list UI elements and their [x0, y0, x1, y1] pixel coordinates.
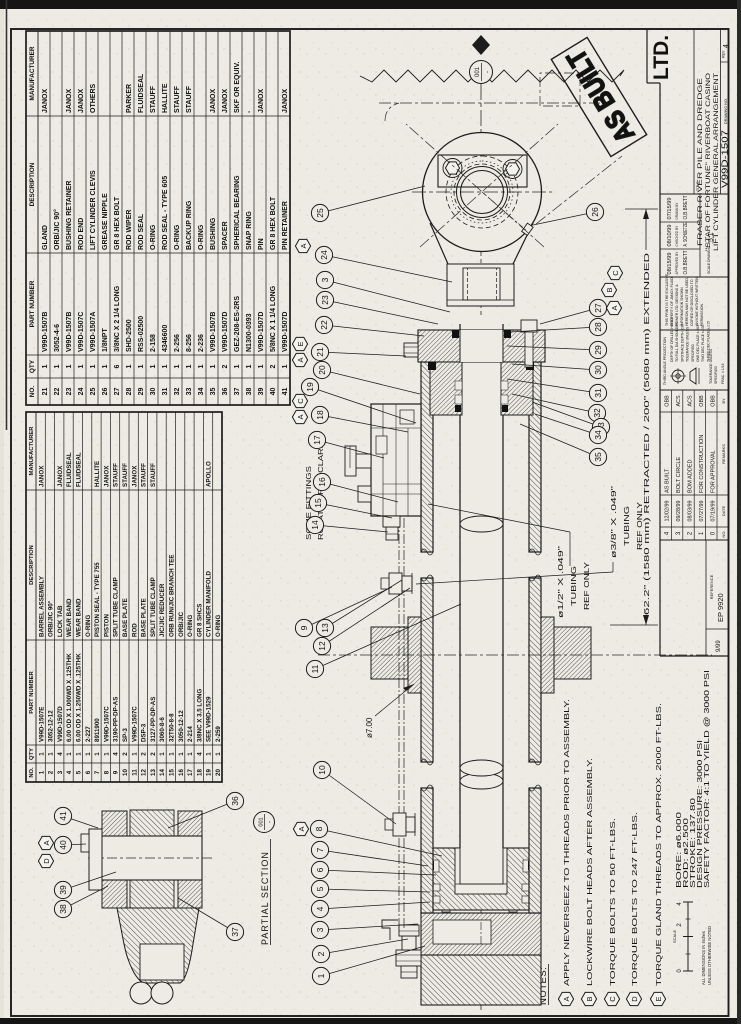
svg-text:3: 3: [320, 277, 330, 282]
svg-text:4: 4: [677, 902, 683, 906]
svg-text:4: 4: [66, 770, 73, 774]
svg-text:22: 22: [54, 388, 61, 396]
svg-text:1: 1: [234, 364, 241, 368]
svg-text:11: 11: [310, 664, 320, 673]
svg-text:CYLINDER MANIFOLD: CYLINDER MANIFOLD: [206, 570, 213, 637]
svg-text:2-214: 2-214: [187, 726, 194, 742]
svg-text:19: 19: [206, 769, 213, 776]
svg-text:SPHERICAL BEARING: SPHERICAL BEARING: [234, 175, 241, 250]
svg-text:ROD WIPER: ROD WIPER: [126, 210, 133, 250]
svg-text:10: 10: [122, 769, 129, 776]
svg-text:08/15/99: 08/15/99: [667, 252, 673, 274]
svg-text:38: 38: [246, 388, 253, 396]
svg-text:19: 19: [305, 382, 315, 392]
svg-text:1: 1: [38, 770, 45, 774]
svg-text:O.B.BRETT: O.B.BRETT: [683, 196, 689, 220]
svg-text:OTHERS: OTHERS: [90, 84, 97, 114]
svg-text:MANUFACTURER: MANUFACTURER: [29, 46, 36, 100]
svg-text:DSP-3: DSP-3: [141, 723, 148, 742]
svg-text:17: 17: [187, 769, 194, 776]
svg-text:JIC/JIC REDUCER: JIC/JIC REDUCER: [159, 583, 166, 637]
svg-text:TO FULL DIA SHOULDER: TO FULL DIA SHOULDER: [675, 322, 679, 362]
svg-text:3190-PP-DP-AS: 3190-PP-DP-AS: [113, 697, 120, 742]
svg-text:BY: BY: [721, 398, 726, 404]
svg-text:LIFT CYLINDER GENERAL ARRANGEM: LIFT CYLINDER GENERAL ARRANGEMENT: [713, 73, 720, 251]
svg-text:5: 5: [75, 770, 82, 774]
svg-text:07/19/99: 07/19/99: [710, 501, 716, 522]
svg-text:2: 2: [316, 951, 326, 956]
svg-text:1: 1: [206, 752, 213, 756]
svg-text:FOR APPROVAL: FOR APPROVAL: [710, 450, 716, 493]
svg-text:6: 6: [114, 364, 121, 368]
svg-text:BASE PLATE: BASE PLATE: [141, 598, 148, 637]
svg-text:1: 1: [85, 752, 92, 756]
svg-text:D: D: [630, 996, 639, 1002]
svg-text:1: 1: [168, 752, 175, 756]
svg-text:3052-4-6: 3052-4-6: [54, 324, 61, 352]
svg-text:B: B: [605, 287, 614, 292]
svg-text:FOR CONSTRUCTION: FOR CONSTRUCTION: [699, 435, 705, 493]
svg-text:"STAR OF FORTUNE" RIVERBOAT CA: "STAR OF FORTUNE" RIVERBOAT CASINO: [705, 73, 712, 251]
svg-text:SPECIFIED: SPECIFIED: [714, 366, 718, 384]
svg-text:O-RING: O-RING: [174, 224, 181, 250]
svg-text:E: E: [296, 341, 305, 346]
svg-text:TUBING: TUBING: [622, 505, 631, 546]
svg-text:ø3/8" X .049": ø3/8" X .049": [609, 485, 618, 558]
svg-text:16: 16: [178, 769, 185, 776]
svg-text:27: 27: [593, 303, 603, 313]
svg-text:1: 1: [258, 364, 265, 368]
svg-text:1: 1: [131, 752, 138, 756]
svg-text:6: 6: [315, 867, 325, 872]
svg-text:4: 4: [57, 752, 64, 756]
svg-text:1: 1: [103, 752, 110, 756]
svg-text:15: 15: [313, 498, 323, 508]
svg-text:GLAND: GLAND: [42, 225, 49, 250]
svg-text:GEZ-208-ES-2RS: GEZ-208-ES-2RS: [234, 296, 241, 352]
svg-text:ORB/JIC: ORB/JIC: [178, 611, 185, 637]
svg-text:37: 37: [234, 388, 241, 396]
svg-text:A: A: [297, 826, 306, 831]
svg-text:6.00 OD X 1.000WD X .125THK: 6.00 OD X 1.000WD X .125THK: [66, 653, 73, 742]
svg-text:2: 2: [222, 364, 229, 368]
svg-text:B: B: [585, 996, 594, 1001]
svg-text:3: 3: [57, 770, 64, 774]
svg-text:1: 1: [150, 364, 157, 368]
svg-text:13: 13: [150, 769, 157, 776]
svg-text:12: 12: [141, 769, 148, 776]
svg-text:STAUFF: STAUFF: [150, 463, 157, 487]
svg-text:8: 8: [103, 770, 110, 774]
svg-text:MANUFACTURER: MANUFACTURER: [29, 426, 35, 476]
svg-text:STAUFF: STAUFF: [113, 463, 120, 487]
svg-text:11: 11: [131, 769, 138, 776]
svg-text:18: 18: [196, 769, 203, 776]
svg-text:23: 23: [320, 295, 330, 305]
svg-text:1: 1: [78, 364, 85, 368]
svg-text:O-RING: O-RING: [85, 614, 92, 637]
svg-text:SEE V99D-1529: SEE V99D-1529: [206, 696, 213, 742]
svg-text:09/28/99: 09/28/99: [676, 501, 682, 522]
svg-text:REFERENCE: REFERENCE: [709, 574, 714, 599]
svg-text:41: 41: [282, 388, 289, 396]
svg-text:2-236: 2-236: [198, 334, 205, 352]
svg-text:V99D-1507E: V99D-1507E: [38, 707, 45, 742]
svg-text:HALLITE: HALLITE: [162, 83, 169, 113]
svg-text:THIS PRINT IS THE EXCLUSIVE: THIS PRINT IS THE EXCLUSIVE: [665, 273, 669, 326]
svg-text:APOLLO: APOLLO: [206, 461, 213, 487]
svg-text:STAUFF: STAUFF: [150, 85, 157, 113]
svg-text:38: 38: [58, 904, 68, 914]
svg-text:15: 15: [168, 769, 175, 776]
svg-text:LOCK TAB: LOCK TAB: [57, 605, 64, 637]
svg-text:1: 1: [699, 531, 705, 535]
svg-text:V99D-1507: V99D-1507: [721, 129, 730, 188]
svg-text:UNLESS OTHERWISE NOTED: UNLESS OTHERWISE NOTED: [707, 926, 712, 985]
svg-text:OBB: OBB: [699, 395, 705, 407]
svg-text:BOLT CIRCLE: BOLT CIRCLE: [676, 457, 682, 493]
svg-text:3050-12-12: 3050-12-12: [178, 710, 185, 742]
svg-text:V99D-1507B: V99D-1507B: [210, 312, 217, 352]
svg-text:JANOX: JANOX: [42, 89, 49, 113]
svg-text:FLUIDSEAL: FLUIDSEAL: [138, 73, 145, 113]
svg-text:ø1/2" X .049": ø1/2" X .049": [556, 545, 565, 618]
svg-text:1: 1: [94, 752, 101, 756]
svg-text:V99D-1507D: V99D-1507D: [57, 706, 64, 742]
svg-text:62.2" (1580 mm) RETRACTED / 20: 62.2" (1580 mm) RETRACTED / 200" (5080 m…: [642, 252, 651, 615]
svg-text:FRAC. ± 1/16: FRAC. ± 1/16: [721, 363, 725, 384]
svg-text:22: 22: [319, 320, 329, 330]
svg-text:TORQUE GLAND THREADS TO APPROX: TORQUE GLAND THREADS TO APPROX. 2000 FT-…: [654, 703, 663, 986]
svg-text:30: 30: [593, 365, 603, 375]
svg-text:3/8NC X 2 1/4 LONG: 3/8NC X 2 1/4 LONG: [114, 285, 121, 352]
svg-text:PERMISSION.: PERMISSION.: [700, 303, 704, 326]
svg-text:4: 4: [315, 906, 325, 911]
svg-text:D: D: [42, 858, 51, 864]
svg-text:JANOX: JANOX: [66, 89, 73, 113]
svg-text:FLUIDSEAL: FLUIDSEAL: [66, 452, 73, 487]
svg-text:WEAR BAND: WEAR BAND: [75, 598, 82, 637]
svg-text:V99D-1507C: V99D-1507C: [103, 706, 110, 742]
svg-text:8-256: 8-256: [186, 334, 193, 352]
svg-text:1: 1: [54, 364, 61, 368]
svg-text:C: C: [296, 398, 305, 404]
svg-text:TWO DEC PLACE ±.030: TWO DEC PLACE ±.030: [701, 324, 705, 362]
svg-text:A: A: [610, 305, 619, 310]
svg-text:REV: REV: [722, 50, 726, 58]
svg-text:ø7.00: ø7.00: [365, 717, 374, 738]
svg-text:DRAWN BY: DRAWN BY: [675, 202, 679, 220]
svg-text:3/8NC X 3.5 LONG: 3/8NC X 3.5 LONG: [196, 689, 203, 742]
svg-text:REF ONLY: REF ONLY: [582, 562, 591, 610]
svg-text:STAUFF: STAUFF: [186, 85, 193, 113]
svg-text:3: 3: [676, 531, 682, 535]
svg-text:ACS: ACS: [676, 395, 682, 406]
svg-text:16: 16: [317, 477, 327, 487]
svg-text:25: 25: [315, 208, 325, 218]
svg-text:-: -: [246, 110, 253, 113]
svg-text:PARTIAL SECTION: PARTIAL SECTION: [260, 851, 270, 945]
svg-text:RSS-02500: RSS-02500: [138, 316, 145, 352]
svg-text:28: 28: [126, 388, 133, 396]
svg-text:SHD-2500: SHD-2500: [126, 319, 133, 352]
svg-text:29: 29: [138, 388, 145, 396]
svg-text:32T50-8-8: 32T50-8-8: [168, 713, 175, 742]
svg-text:31: 31: [593, 388, 603, 398]
svg-text:5/8NC X 1 1/4 LONG: 5/8NC X 1 1/4 LONG: [270, 285, 277, 352]
svg-text:18: 18: [315, 410, 325, 420]
svg-text:14: 14: [310, 520, 320, 530]
svg-text:4346600: 4346600: [162, 325, 169, 352]
svg-text:10: 10: [317, 765, 327, 775]
svg-text:TUBING: TUBING: [569, 565, 578, 606]
svg-text:JANOX: JANOX: [78, 89, 85, 113]
svg-text:HALLITE: HALLITE: [94, 461, 101, 487]
svg-text:21: 21: [42, 388, 49, 396]
svg-text:LIFT CYLINDER CLEVIS: LIFT CYLINDER CLEVIS: [90, 170, 97, 250]
svg-text:ORB/JIC 90°: ORB/JIC 90°: [53, 209, 61, 250]
svg-text:SPACER: SPACER: [222, 221, 229, 250]
svg-text:39: 39: [58, 885, 68, 895]
svg-text:V99D-1507B: V99D-1507B: [42, 312, 49, 352]
svg-text:35: 35: [210, 388, 217, 396]
svg-text:13: 13: [320, 623, 330, 633]
svg-text:V99D-1507A: V99D-1507A: [90, 312, 97, 352]
svg-text:HEREON MAY NOT BE USED,: HEREON MAY NOT BE USED,: [685, 277, 689, 326]
svg-text:A: A: [42, 840, 51, 845]
svg-text:2: 2: [122, 752, 129, 756]
svg-text:1/8NPT: 1/8NPT: [102, 328, 109, 352]
svg-text:O-RING: O-RING: [150, 224, 157, 250]
svg-text:STAUFF: STAUFF: [122, 463, 129, 487]
svg-text:07/15/99: 07/15/99: [667, 197, 673, 219]
svg-text:4: 4: [723, 44, 730, 48]
svg-text:PIN RETAINER: PIN RETAINER: [282, 201, 289, 250]
svg-text:NO.: NO.: [721, 530, 726, 537]
svg-text:0: 0: [710, 531, 716, 535]
svg-text:36: 36: [222, 388, 229, 396]
svg-text:24: 24: [319, 250, 329, 260]
svg-text:6: 6: [85, 770, 92, 774]
svg-text:1: 1: [66, 752, 73, 756]
svg-text:A: A: [299, 243, 308, 248]
svg-text:1: 1: [90, 364, 97, 368]
svg-text:1: 1: [38, 752, 45, 756]
svg-text:9: 9: [113, 770, 120, 774]
svg-text:V99D-1507C: V99D-1507C: [78, 312, 85, 352]
svg-text:1: 1: [187, 752, 194, 756]
svg-text:0: 0: [677, 969, 683, 973]
svg-text:ROD SEAL - TYPE 605: ROD SEAL - TYPE 605: [162, 176, 169, 250]
svg-text:2-256: 2-256: [174, 334, 181, 352]
svg-text:SP-3: SP-3: [122, 728, 129, 742]
svg-text:ROD SEAL: ROD SEAL: [138, 213, 145, 250]
svg-text:PART NUMBER: PART NUMBER: [29, 280, 36, 327]
svg-text:JANOX: JANOX: [222, 89, 229, 113]
svg-text:ROD: ROD: [131, 623, 138, 637]
svg-text:O-RING: O-RING: [198, 224, 205, 250]
svg-text:2-158: 2-158: [150, 334, 157, 352]
svg-text:20: 20: [215, 769, 222, 776]
svg-text:1: 1: [102, 364, 109, 368]
svg-text:JANOX: JANOX: [57, 465, 64, 487]
svg-text:THIRD ANGLE PROJECTION: THIRD ANGLE PROJECTION: [663, 337, 667, 386]
svg-text:ALL DIMENSIONS IN Inches: ALL DIMENSIONS IN Inches: [701, 931, 706, 985]
svg-text:29: 29: [593, 345, 603, 355]
svg-text:ROD END: ROD END: [78, 218, 85, 250]
svg-text:1: 1: [126, 364, 133, 368]
svg-text:8911900: 8911900: [94, 718, 101, 742]
svg-text:1: 1: [159, 752, 166, 756]
svg-text:BOM ADDED: BOM ADDED: [688, 459, 694, 493]
svg-text:1: 1: [42, 364, 49, 368]
svg-text:2: 2: [150, 752, 157, 756]
svg-text:DRAWING NO.: DRAWING NO.: [724, 98, 728, 124]
svg-text:V99D-1507C: V99D-1507C: [131, 706, 138, 742]
svg-text:7: 7: [315, 847, 325, 852]
svg-text:V99D-1507D: V99D-1507D: [222, 312, 229, 352]
svg-text:4: 4: [113, 752, 120, 756]
svg-text:28: 28: [593, 322, 603, 332]
svg-text:001: 001: [475, 66, 481, 77]
svg-text:20: 20: [317, 365, 327, 375]
svg-text:POWER LTD. DESIGNS &: POWER LTD. DESIGNS &: [675, 284, 679, 326]
svg-text:PISTON: PISTON: [103, 614, 110, 637]
svg-text:SPOTFACE DEPTH .030: SPOTFACE DEPTH .030: [680, 324, 684, 362]
svg-text:APPROVED BY: APPROVED BY: [675, 251, 679, 275]
svg-text:12/02/99: 12/02/99: [665, 501, 671, 522]
svg-text:12: 12: [317, 641, 327, 651]
svg-text:SCALE: SCALE: [672, 930, 677, 943]
svg-text:GR 8 SHCS: GR 8 SHCS: [196, 604, 203, 637]
svg-text:2-259: 2-259: [215, 726, 222, 742]
svg-text:07/27/99: 07/27/99: [699, 501, 705, 522]
svg-text:41: 41: [58, 811, 68, 821]
svg-text:34: 34: [198, 388, 205, 396]
svg-text:37: 37: [230, 927, 240, 937]
svg-text:JANOX: JANOX: [258, 89, 265, 113]
svg-text:SPLIT TUBE CLAMP: SPLIT TUBE CLAMP: [150, 577, 157, 637]
svg-text:21: 21: [315, 347, 325, 357]
svg-text:ANYONE WITHOUT WRITTEN: ANYONE WITHOUT WRITTEN: [695, 277, 699, 326]
svg-text:A: A: [296, 414, 305, 419]
svg-text:1: 1: [198, 364, 205, 368]
svg-text:GR 8 HEX BOLT: GR 8 HEX BOLT: [270, 196, 277, 250]
svg-text:3127-PP-DP-AS: 3127-PP-DP-AS: [150, 697, 157, 742]
svg-text:6.00 OD X 1.250WD X .125THK: 6.00 OD X 1.250WD X .125THK: [75, 653, 82, 742]
svg-text:-: -: [267, 821, 273, 823]
svg-text:COPIED OR DISCLOSED TO: COPIED OR DISCLOSED TO: [690, 279, 694, 326]
svg-text:JANOX: JANOX: [38, 465, 45, 487]
svg-text:O-RING: O-RING: [187, 614, 194, 637]
svg-text:BARREL ASSEMBLY: BARREL ASSEMBLY: [38, 575, 45, 637]
svg-text:1: 1: [186, 364, 193, 368]
svg-text:PROPERTY OF JANOX FLUID: PROPERTY OF JANOX FLUID: [670, 277, 674, 326]
svg-text:REMARKS: REMARKS: [721, 444, 726, 464]
svg-text:3052-12-12: 3052-12-12: [48, 710, 55, 742]
svg-text:C: C: [608, 996, 617, 1002]
svg-text:2: 2: [48, 770, 55, 774]
svg-text:4: 4: [196, 752, 203, 756]
svg-text:SNAP RING: SNAP RING: [246, 211, 253, 250]
svg-text:40: 40: [58, 840, 68, 850]
svg-text:CHECKED BY: CHECKED BY: [675, 225, 679, 247]
svg-text:QTY: QTY: [29, 748, 35, 760]
svg-text:32: 32: [592, 408, 602, 418]
svg-text:1: 1: [75, 752, 82, 756]
svg-text:BACKUP RING: BACKUP RING: [186, 200, 193, 250]
svg-text:1: 1: [215, 752, 222, 756]
svg-text:OBB: OBB: [710, 395, 716, 407]
svg-text:3: 3: [315, 927, 325, 932]
svg-text:JANOX: JANOX: [282, 89, 289, 113]
svg-text:N1300-0393: N1300-0393: [246, 313, 253, 352]
svg-text:1: 1: [162, 364, 169, 368]
svg-text:APPLY NEVERSEEZ TO THREADS PRI: APPLY NEVERSEEZ TO THREADS PRIOR TO ASSE…: [562, 699, 571, 986]
svg-text:32: 32: [174, 388, 181, 396]
svg-text:V99D-1507D: V99D-1507D: [258, 312, 265, 352]
svg-text:JANOX: JANOX: [210, 89, 217, 113]
svg-text:3060-8-6: 3060-8-6: [159, 717, 166, 742]
svg-text:BUSHING: BUSHING: [210, 217, 217, 250]
svg-text:SAFETY FACTOR: 4:1 TO YIELD @: SAFETY FACTOR: 4:1 TO YIELD @ 3000 PSI: [702, 670, 711, 888]
svg-text:STAUFF: STAUFF: [174, 85, 181, 113]
svg-text:TORQUE BOLTS TO 247 FT-LBS.: TORQUE BOLTS TO 247 FT-LBS.: [630, 812, 639, 986]
svg-text:A. SCHUETZE: A. SCHUETZE: [683, 222, 689, 246]
svg-text:STAUFF: STAUFF: [141, 463, 148, 487]
svg-text:ORB/JIC 90°: ORB/JIC 90°: [48, 600, 55, 637]
svg-text:14: 14: [159, 769, 166, 776]
svg-text:30: 30: [150, 388, 157, 396]
svg-text:PIN: PIN: [258, 238, 265, 250]
svg-text:1: 1: [174, 364, 181, 368]
svg-text:JANOX: JANOX: [103, 465, 110, 487]
svg-text:NO.: NO.: [29, 767, 35, 778]
svg-text:GREASE NIPPLE: GREASE NIPPLE: [102, 193, 109, 250]
svg-text:7: 7: [94, 770, 101, 774]
svg-text:24: 24: [78, 388, 85, 396]
svg-text:JANOX: JANOX: [131, 465, 138, 487]
svg-text:31: 31: [162, 388, 169, 396]
svg-text:1: 1: [138, 364, 145, 368]
svg-text:PISTON SEAL - TYPE 755: PISTON SEAL - TYPE 755: [94, 562, 101, 637]
svg-text:1: 1: [210, 364, 217, 368]
svg-text:GR 8 HEX BOLT: GR 8 HEX BOLT: [114, 196, 121, 250]
svg-text:4: 4: [665, 531, 671, 535]
svg-text:1: 1: [316, 973, 326, 978]
svg-text:33: 33: [186, 388, 193, 396]
svg-text:REF ONLY: REF ONLY: [635, 502, 644, 550]
svg-text:TOLERANCE UNLESS: TOLERANCE UNLESS: [686, 326, 690, 362]
svg-text:TORQUE BOLTS TO 50 FT-LBS.: TORQUE BOLTS TO 50 FT-LBS.: [608, 818, 617, 986]
svg-text:SKF OR EQUIV.: SKF OR EQUIV.: [234, 61, 241, 113]
svg-text:DESCRIPTION: DESCRIPTION: [29, 545, 35, 585]
svg-text:O.B.BRETT: O.B.BRETT: [683, 251, 689, 275]
svg-text:34: 34: [593, 430, 603, 440]
svg-text:LOCKWIRE BOLT HEADS AFTER ASSE: LOCKWIRE BOLT HEADS AFTER ASSEMBLY.: [585, 758, 594, 986]
svg-text:INFORMATION SHOWN: INFORMATION SHOWN: [680, 287, 684, 326]
svg-text:A: A: [296, 357, 305, 362]
svg-text:36: 36: [230, 796, 240, 806]
svg-text:2: 2: [688, 531, 694, 535]
svg-text:ACS: ACS: [688, 395, 694, 406]
svg-text:BUSHING RETAINER: BUSHING RETAINER: [66, 181, 73, 250]
svg-text:25: 25: [90, 388, 97, 396]
svg-text:001: 001: [259, 817, 265, 826]
svg-text:FRASER RIVER PILE AND DREDGE: FRASER RIVER PILE AND DREDGE: [697, 78, 704, 246]
svg-text:DESCRIPTION: DESCRIPTION: [29, 162, 36, 206]
svg-text:9/99: 9/99: [716, 640, 722, 652]
